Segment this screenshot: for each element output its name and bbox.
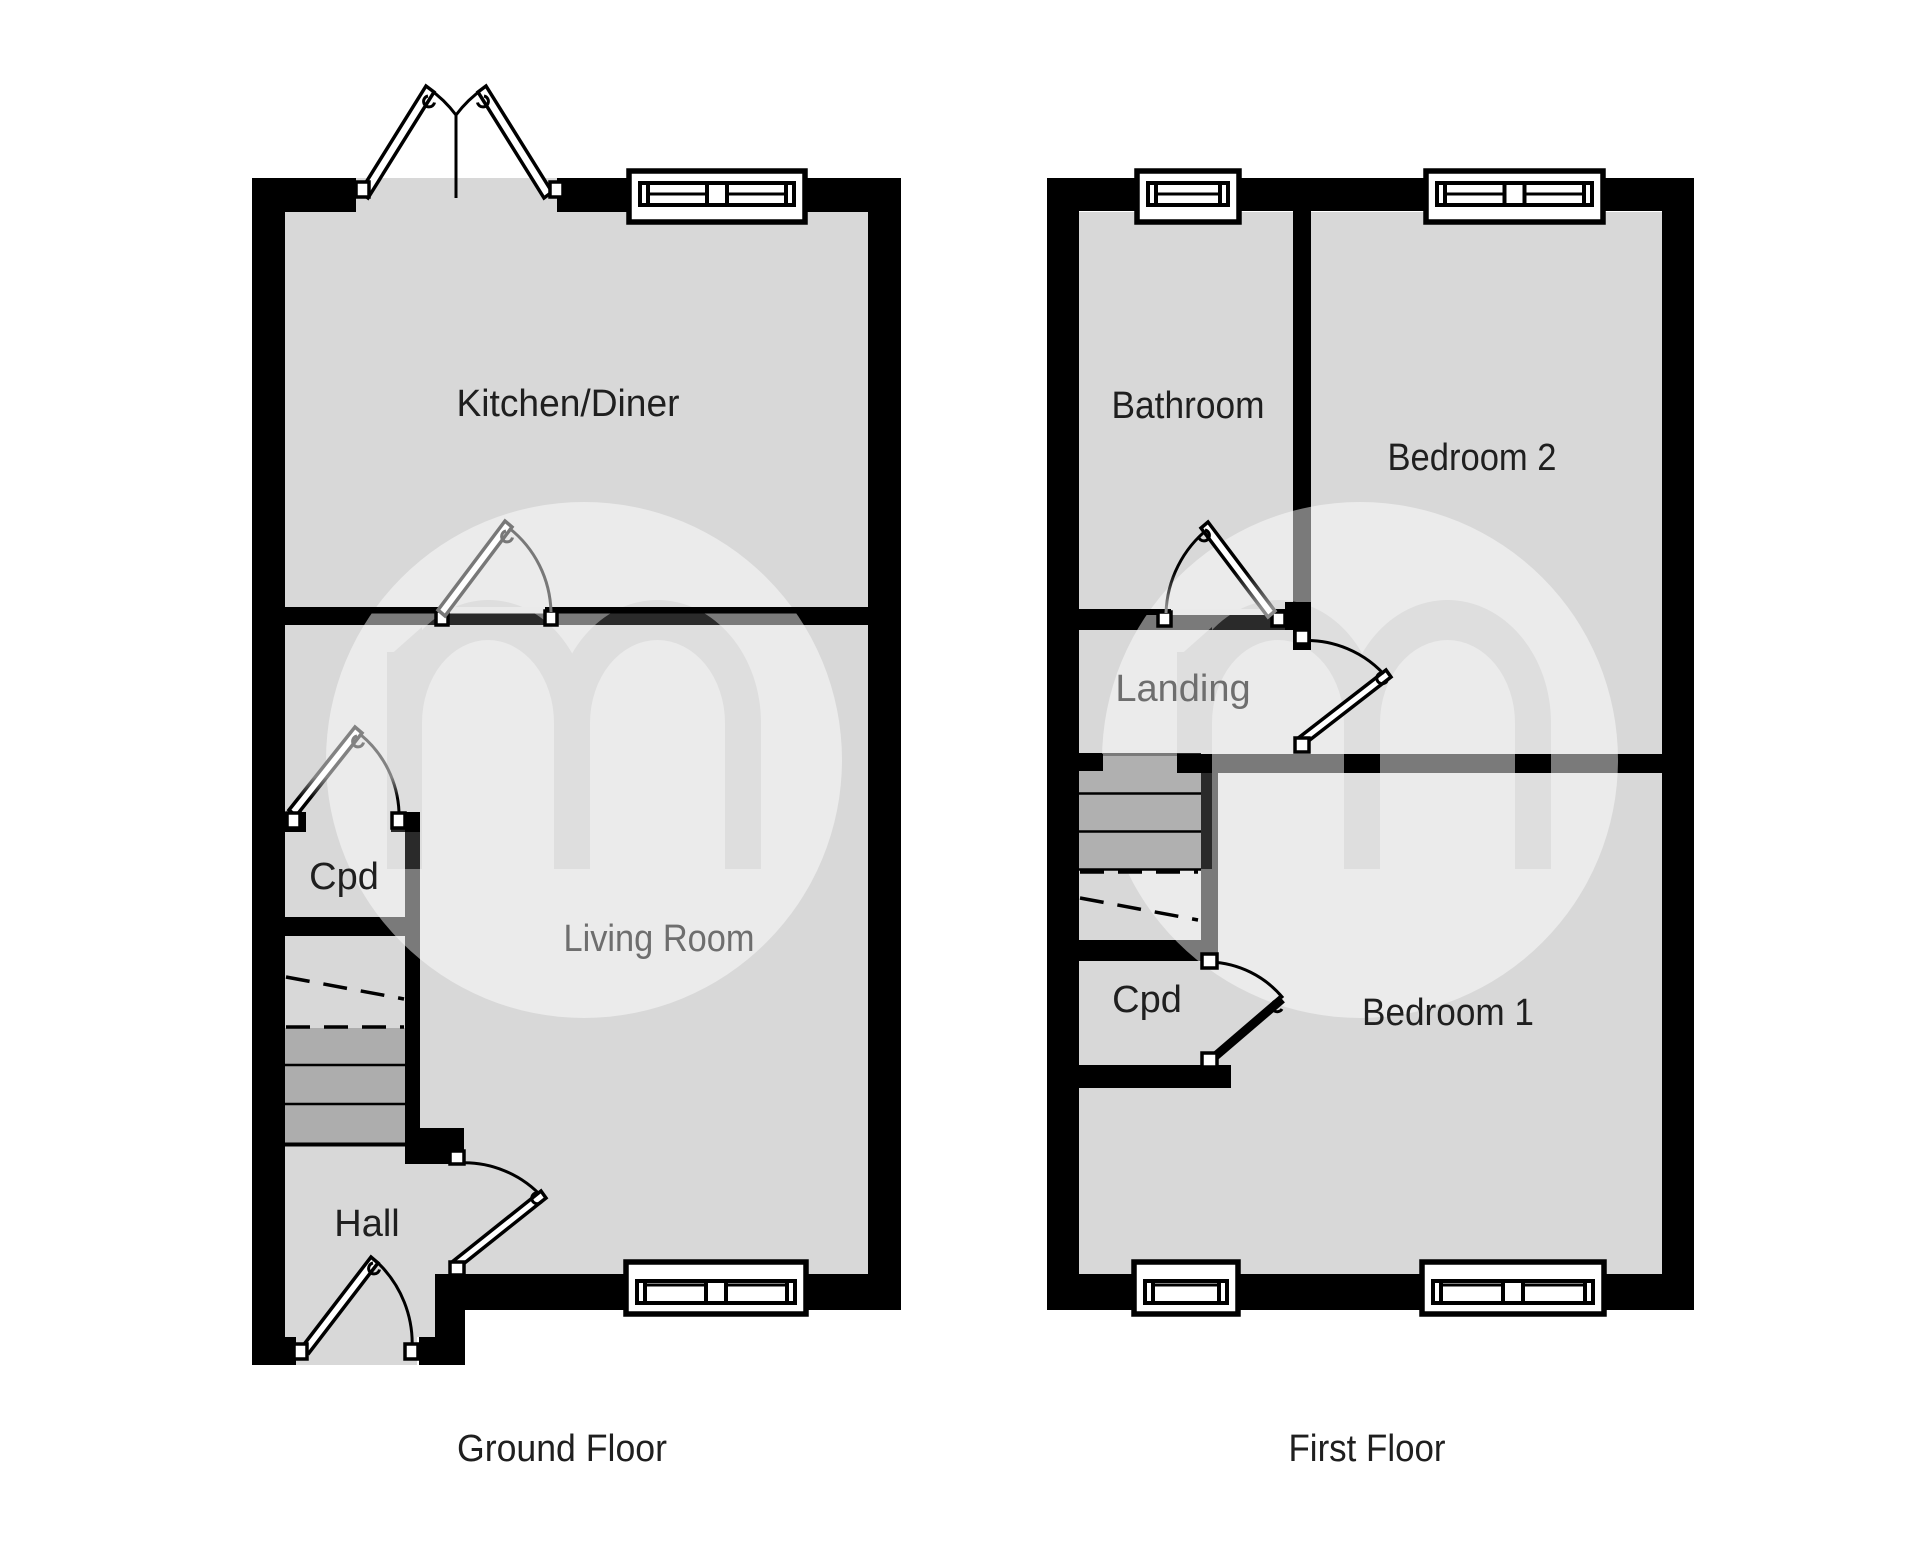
svg-text:Living Room: Living Room xyxy=(564,918,755,960)
svg-text:First Floor: First Floor xyxy=(1289,1428,1446,1470)
svg-text:Bedroom 1: Bedroom 1 xyxy=(1362,992,1534,1034)
svg-text:Cpd: Cpd xyxy=(309,856,379,898)
svg-text:Kitchen/Diner: Kitchen/Diner xyxy=(457,383,680,425)
svg-text:Ground Floor: Ground Floor xyxy=(457,1428,667,1470)
svg-text:Bathroom: Bathroom xyxy=(1112,385,1265,427)
svg-text:Bedroom 2: Bedroom 2 xyxy=(1388,437,1557,479)
svg-text:Hall: Hall xyxy=(334,1203,399,1245)
svg-text:Cpd: Cpd xyxy=(1112,979,1182,1021)
svg-text:Landing: Landing xyxy=(1115,668,1250,710)
